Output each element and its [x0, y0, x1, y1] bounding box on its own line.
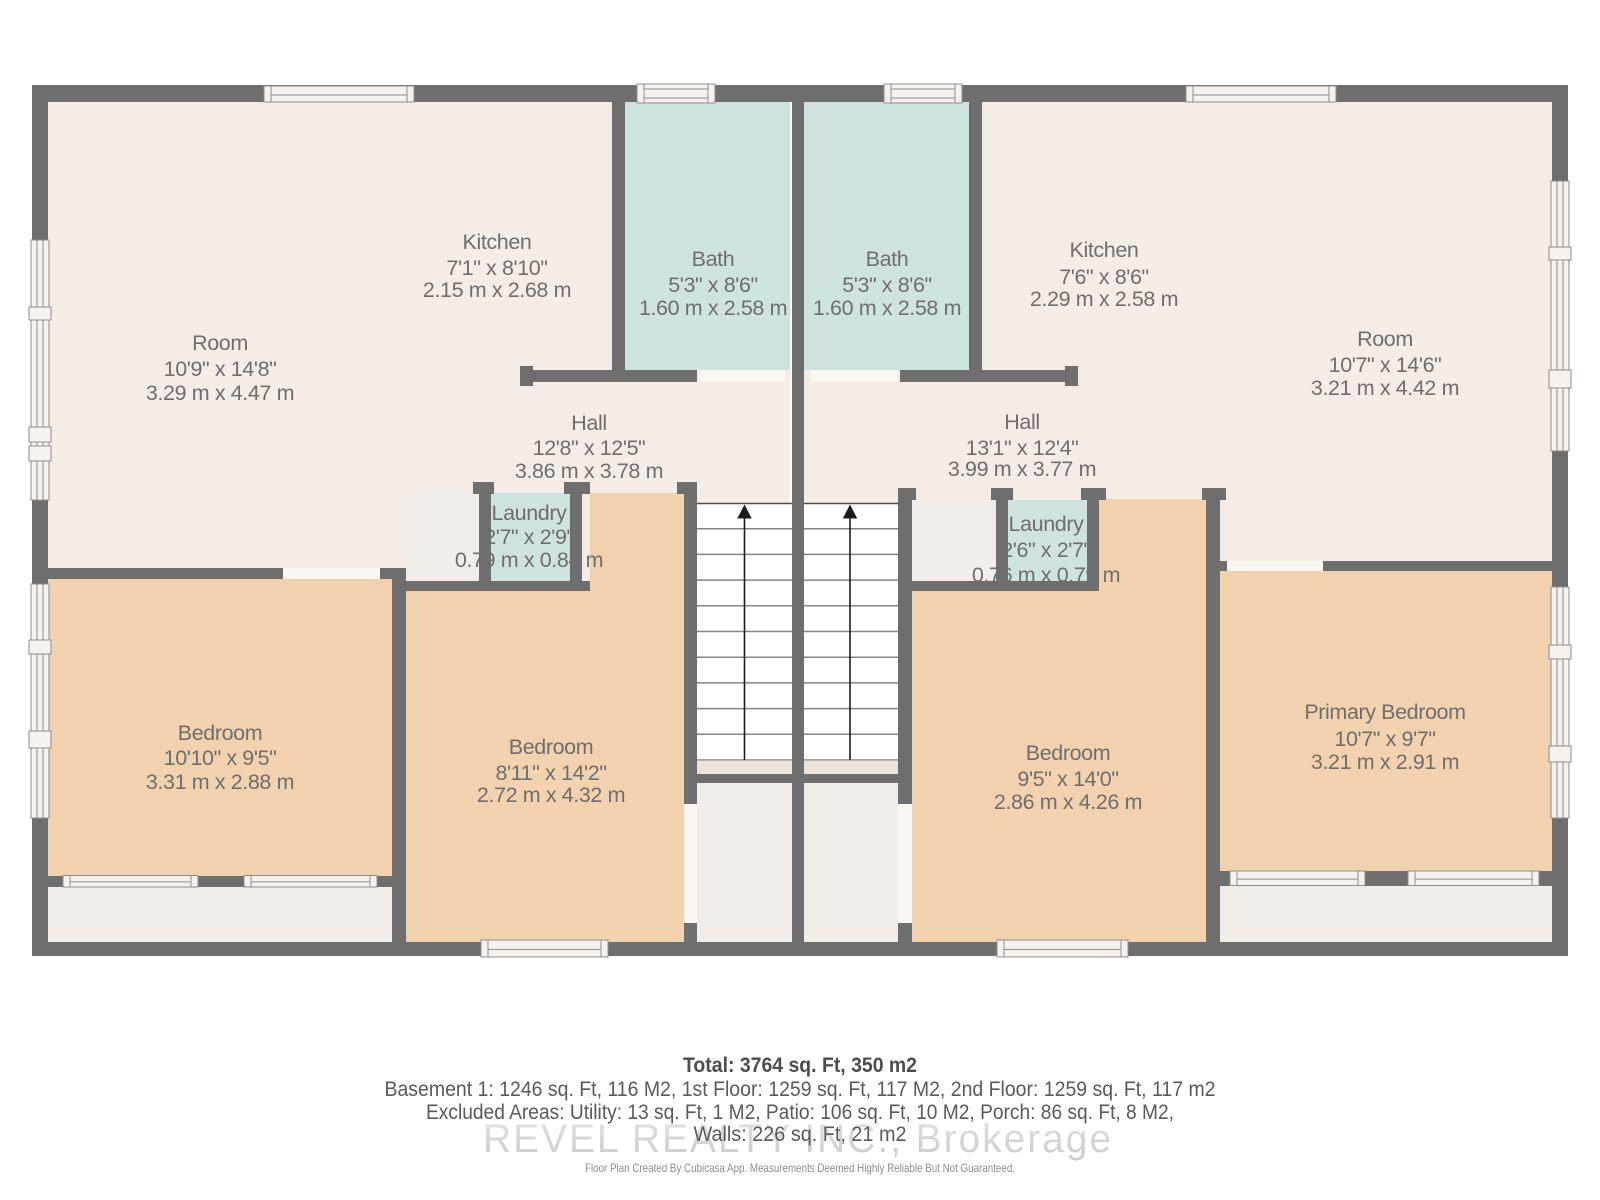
- svg-text:10'10" x 9'5": 10'10" x 9'5": [164, 746, 277, 770]
- svg-text:Excluded Areas: Utility: 13 sq: Excluded Areas: Utility: 13 sq. Ft, 1 M2…: [426, 1100, 1174, 1124]
- svg-text:2.86 m x 4.26 m: 2.86 m x 4.26 m: [994, 790, 1142, 814]
- svg-text:Primary Bedroom: Primary Bedroom: [1304, 700, 1465, 724]
- svg-text:Bedroom: Bedroom: [1026, 741, 1110, 765]
- svg-text:2'7" x 2'9": 2'7" x 2'9": [484, 525, 574, 549]
- svg-text:Total: 3764 sq. Ft, 350 m2: Total: 3764 sq. Ft, 350 m2: [683, 1053, 917, 1077]
- svg-text:Bath: Bath: [866, 247, 909, 271]
- svg-text:Bath: Bath: [692, 247, 735, 271]
- svg-text:Kitchen: Kitchen: [1070, 238, 1139, 262]
- svg-text:Bedroom: Bedroom: [509, 735, 593, 759]
- svg-text:10'9" x 14'8": 10'9" x 14'8": [164, 357, 277, 381]
- svg-text:8'11" x 14'2": 8'11" x 14'2": [495, 761, 606, 785]
- svg-text:Kitchen: Kitchen: [463, 230, 532, 254]
- svg-text:3.99 m x 3.77 m: 3.99 m x 3.77 m: [948, 457, 1096, 481]
- svg-text:10'7" x 9'7": 10'7" x 9'7": [1334, 727, 1435, 751]
- svg-text:3.21 m x 4.42 m: 3.21 m x 4.42 m: [1311, 376, 1459, 400]
- svg-text:3.86 m x 3.78 m: 3.86 m x 3.78 m: [515, 459, 663, 483]
- svg-text:Hall: Hall: [571, 411, 606, 435]
- svg-text:2.15 m x 2.68 m: 2.15 m x 2.68 m: [423, 278, 571, 302]
- svg-text:2.29 m x 2.58 m: 2.29 m x 2.58 m: [1030, 287, 1178, 311]
- svg-text:Room: Room: [1357, 327, 1413, 351]
- svg-text:Laundry: Laundry: [1009, 512, 1085, 536]
- svg-text:Bedroom: Bedroom: [178, 721, 262, 745]
- svg-text:1.60 m x 2.58 m: 1.60 m x 2.58 m: [813, 296, 961, 320]
- svg-text:9'5" x 14'0": 9'5" x 14'0": [1017, 767, 1118, 791]
- svg-text:Hall: Hall: [1004, 410, 1039, 434]
- svg-text:7'6" x 8'6": 7'6" x 8'6": [1059, 265, 1149, 289]
- svg-text:Floor Plan Created By Cubicasa: Floor Plan Created By Cubicasa App. Meas…: [585, 1161, 1015, 1175]
- svg-text:7'1" x 8'10": 7'1" x 8'10": [446, 256, 547, 280]
- svg-text:3.21 m x 2.91 m: 3.21 m x 2.91 m: [1311, 750, 1459, 774]
- svg-text:5'3" x 8'6": 5'3" x 8'6": [668, 273, 758, 297]
- svg-text:1.60 m x 2.58 m: 1.60 m x 2.58 m: [639, 296, 787, 320]
- svg-text:3.29 m x 4.47 m: 3.29 m x 4.47 m: [146, 381, 294, 405]
- svg-text:12'8" x 12'5": 12'8" x 12'5": [533, 436, 646, 460]
- svg-text:2'6" x 2'7": 2'6" x 2'7": [1001, 538, 1091, 562]
- svg-text:2.72 m x 4.32 m: 2.72 m x 4.32 m: [477, 783, 625, 807]
- svg-text:Basement 1: 1246 sq. Ft, 116 M: Basement 1: 1246 sq. Ft, 116 M2, 1st Flo…: [385, 1077, 1216, 1101]
- svg-text:3.31 m x 2.88 m: 3.31 m x 2.88 m: [146, 770, 294, 794]
- svg-text:Room: Room: [192, 331, 248, 355]
- svg-text:10'7" x 14'6": 10'7" x 14'6": [1329, 353, 1442, 377]
- svg-text:Walls: 226 sq. Ft, 21 m2: Walls: 226 sq. Ft, 21 m2: [694, 1122, 907, 1146]
- svg-text:Laundry: Laundry: [492, 501, 568, 525]
- svg-text:5'3" x 8'6": 5'3" x 8'6": [842, 273, 932, 297]
